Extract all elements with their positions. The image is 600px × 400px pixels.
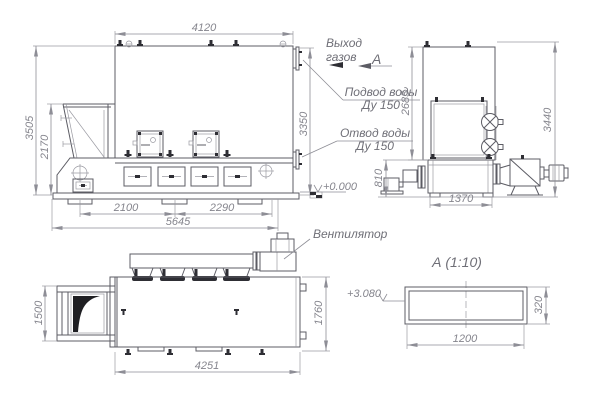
blower-motor-assembly: [381, 166, 425, 194]
dim-side-depth: 1370: [449, 193, 474, 205]
detail-view-a: А (1:10) +3.080 320 1200: [347, 254, 550, 349]
inspection-hatches: [133, 131, 219, 157]
dim-front-total-height: 3505: [24, 115, 36, 140]
feeder-motor: [549, 165, 568, 181]
level-mark-zero: +0.000: [300, 181, 358, 198]
base-box-side: [428, 154, 493, 197]
side-view: [378, 41, 568, 197]
boiler-body-plan: [110, 277, 306, 355]
center-mark-right: [258, 163, 274, 179]
level-mark-duct: +3.080: [347, 288, 405, 301]
front-view: [53, 40, 302, 204]
ash-door: [124, 167, 151, 186]
boiler-technical-drawing: 4120 3505 2170 3350 2100 2290 5645 Выход…: [0, 0, 600, 400]
dim-front-span-a: 2100: [113, 202, 139, 214]
plan-view: Вентилятор: [57, 227, 388, 355]
dim-side-base-height: 810: [373, 168, 385, 187]
ladder: [108, 104, 115, 158]
fan-unit: [260, 233, 296, 271]
base-platform-front: [53, 158, 299, 204]
level-zero-text: +0.000: [323, 181, 358, 193]
view-direction-letter: А: [371, 51, 381, 67]
hopper-funnel-opening: [73, 296, 100, 332]
fuel-hopper-front: [61, 104, 115, 158]
dim-side-upper-height: 2685: [400, 90, 412, 116]
water-valves: [482, 114, 504, 156]
burner-feeder-assembly: [493, 155, 568, 195]
water-return-flange: [293, 150, 302, 169]
valve: [482, 139, 504, 156]
gas-outlet-flange: [293, 47, 302, 70]
gas-outlet-label-line2: газов: [326, 50, 357, 64]
dim-front-span-b: 2290: [209, 202, 235, 214]
water-return-line1: Отвод воды: [340, 126, 410, 140]
dim-detail-width: 1200: [453, 333, 478, 345]
dim-front-width: 4120: [192, 22, 217, 34]
inspection-hatch: [133, 131, 163, 157]
dim-front-hopper-height: 2170: [39, 134, 51, 160]
dim-plan-hopper-width: 1500: [33, 300, 45, 325]
dim-detail-height: 320: [533, 295, 545, 314]
dim-plan-body-width: 1760: [313, 300, 325, 325]
fan-label: Вентилятор: [313, 227, 388, 241]
valve: [482, 114, 504, 131]
dim-front-body-height: 3350: [298, 111, 310, 136]
dim-plan-length: 4251: [195, 360, 219, 372]
ash-door: [158, 167, 185, 186]
gas-outlet-label-line1: Выход: [326, 36, 362, 50]
dim-side-total-height: 3440: [542, 107, 554, 132]
fuel-hopper-plan: [57, 286, 115, 341]
detail-title: А (1:10): [431, 254, 482, 270]
ash-door: [191, 167, 218, 186]
ash-door: [224, 167, 251, 186]
drawing-canvas: 4120 3505 2170 3350 2100 2290 5645 Выход…: [0, 0, 600, 400]
view-direction-arrow-icon: [358, 63, 371, 69]
hatched-wall-edge: [110, 277, 117, 347]
level-duct-text: +3.080: [347, 288, 382, 300]
water-return-label: Отвод воды Ду 150: [302, 126, 413, 157]
dim-front-total-length: 5645: [166, 216, 191, 228]
ash-doors: [124, 167, 251, 186]
inspection-hatch: [189, 131, 219, 157]
hopper-access-door: [73, 179, 93, 192]
